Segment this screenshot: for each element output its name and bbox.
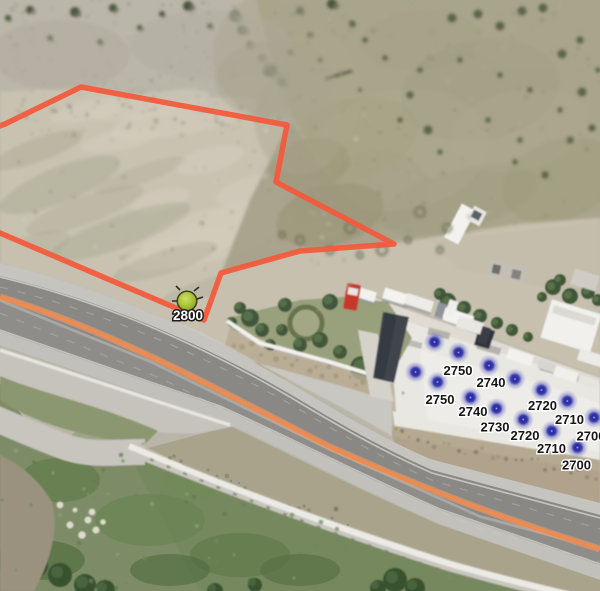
svg-text:2700: 2700 [562,458,591,473]
svg-text:2710: 2710 [537,441,566,456]
svg-text:2730: 2730 [481,420,510,435]
svg-text:2710: 2710 [555,412,584,427]
svg-text:2720: 2720 [511,428,540,443]
svg-text:2740: 2740 [477,375,506,390]
svg-text:2720: 2720 [528,398,557,413]
svg-text:2750: 2750 [444,363,473,378]
svg-text:2700: 2700 [577,429,600,444]
svg-text:2750: 2750 [426,392,455,407]
svg-text:2740: 2740 [459,404,488,419]
svg-text:2800: 2800 [173,308,203,323]
